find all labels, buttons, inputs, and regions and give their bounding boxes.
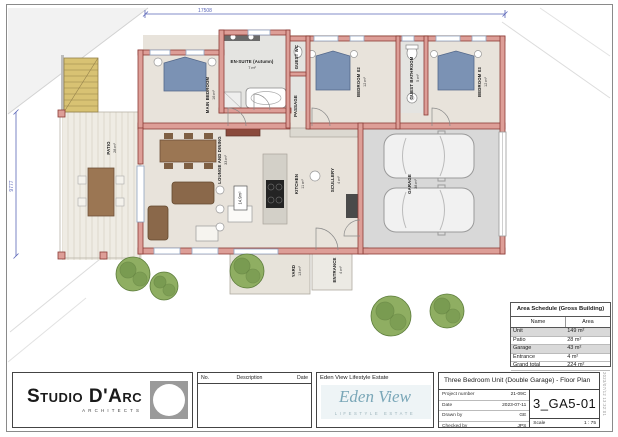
table-row: Patio 28 m²: [511, 337, 610, 346]
architect-logo-text: Studio D'Arc ARCHITECTS: [27, 387, 142, 413]
area-bedroom-03: 12 m²: [484, 76, 488, 86]
row-name: Entrance: [511, 354, 565, 362]
row-name: Garage: [511, 345, 565, 353]
client-logo-script: Eden View: [317, 387, 433, 407]
external-stair: [61, 55, 98, 113]
area-kitchen: 11 m²: [301, 179, 305, 189]
field-label: Checked by: [439, 422, 517, 432]
field-drawn-by: Drawn by GE: [439, 411, 529, 422]
area-garage: 38 m²: [414, 178, 418, 188]
label-patio: PATIO: [106, 141, 111, 155]
label-bedroom-02: BEDROOM 02: [356, 67, 361, 97]
label-bedroom-03: BEDROOM 03: [477, 67, 482, 97]
plot-stamp: 2023/07/12 13:32:01: [602, 372, 607, 430]
area-bedroom-02: 12 m²: [363, 76, 367, 86]
area-scullery: 4 m²: [337, 175, 341, 183]
field-project-number: Project number 21-09C: [439, 390, 529, 401]
label-guest-bathroom: GUEST BATHROOM: [409, 56, 414, 99]
architect-subtitle: ARCHITECTS: [27, 408, 142, 413]
row-area: 43 m²: [565, 345, 610, 353]
field-value: 2023-07-11: [502, 401, 529, 411]
row-name: Patio: [511, 337, 565, 345]
client-logo-subtitle: LIFESTYLE ESTATE: [317, 411, 433, 416]
architect-logo-mark: [150, 381, 188, 419]
drawing-fields: Project number 21-09C Date 2023-07-11 Dr…: [439, 390, 530, 428]
area-yard: 13 m²: [298, 265, 302, 275]
table-row: Entrance 4 m²: [511, 354, 610, 363]
row-name: Grand total: [511, 362, 565, 370]
drawing-info-box: Three Bedroom Unit (Double Garage) - Flo…: [438, 372, 600, 428]
garage-door: [499, 132, 506, 236]
dimension-left-value: 9777: [9, 180, 15, 191]
field-label: Drawn by: [439, 411, 519, 421]
revision-header: No. Description Date: [198, 373, 311, 384]
table-row: Unit 149 m²: [511, 328, 610, 337]
area-main-bedroom: 16 m²: [212, 89, 216, 99]
drawing-scale-row: Scale 1 : 75: [530, 418, 599, 429]
label-kitchen: KITCHEN: [294, 174, 299, 194]
area-schedule-header: Name Area: [511, 317, 610, 328]
label-passage: PASSAGE: [293, 95, 298, 117]
label-lounge-dining: LOUNGE AND DINING: [217, 136, 222, 184]
area-schedule-col-area: Area: [566, 317, 610, 327]
row-name: Unit: [511, 328, 565, 336]
table-row: Garage 43 m²: [511, 345, 610, 354]
revision-table: No. Description Date: [197, 372, 312, 428]
client-project-name: Eden View Lifestyle Estate: [317, 373, 433, 381]
row-area: 28 m²: [565, 337, 610, 345]
scale-value: 1 : 75: [584, 419, 599, 429]
field-value: JPS: [517, 422, 529, 432]
area-guest-bathroom: 5 m²: [416, 73, 420, 81]
area-ensuite: 7 m²: [248, 66, 256, 70]
label-garage: GARAGE: [407, 174, 412, 194]
architect-name: Studio D'Arc: [27, 387, 142, 407]
dimension-top-value: 17508: [198, 8, 212, 14]
label-scullery: SCULLERY: [330, 168, 335, 192]
label-guest-wc: GUEST WC: [294, 45, 299, 69]
row-area: 149 m²: [565, 328, 610, 336]
field-value: 21-09C: [511, 390, 530, 400]
drawing-sheet: 14.9m² MAIN BEDROOM 16 m² EN-SUITE (Autu…: [0, 0, 618, 437]
revision-col-no: No.: [198, 373, 217, 383]
drawing-number: 3_GA5-01: [530, 390, 599, 418]
area-schedule-title: Area Schedule (Gross Building): [511, 303, 610, 317]
drawing-title: Three Bedroom Unit (Double Garage) - Flo…: [439, 373, 599, 390]
field-value: GE: [519, 411, 529, 421]
area-schedule-col-name: Name: [511, 317, 566, 327]
area-patio: 28 m²: [113, 142, 117, 152]
area-entrance: 4 m²: [339, 265, 343, 273]
floor-area-tag: 14.9m²: [234, 186, 247, 210]
field-label: Project number: [439, 390, 511, 400]
scale-label: Scale: [530, 419, 584, 429]
field-label: Date: [439, 401, 502, 411]
table-row: Grand total 224 m²: [511, 362, 610, 371]
field-date: Date 2023-07-11: [439, 401, 529, 412]
field-checked-by: Checked by JPS: [439, 422, 529, 432]
area-lounge-dining: 33 m²: [224, 154, 228, 164]
label-yard: YARD: [291, 265, 296, 277]
architect-logo-box: Studio D'Arc ARCHITECTS: [12, 372, 193, 428]
revision-col-desc: Description: [217, 373, 279, 383]
area-schedule-table: Area Schedule (Gross Building) Name Area…: [510, 302, 611, 367]
revision-col-date: Date: [279, 373, 311, 383]
floor-area-tag-text: 14.9m²: [238, 191, 243, 205]
label-main-bedroom: MAIN BEDROOM: [205, 77, 210, 114]
client-logo-box: Eden View Lifestyle Estate Eden View LIF…: [316, 372, 434, 428]
row-area: 4 m²: [565, 354, 610, 362]
row-area: 224 m²: [565, 362, 610, 370]
label-entrance: ENTRANCE: [332, 257, 337, 282]
label-ensuite: EN-SUITE (Autumn): [231, 59, 274, 64]
